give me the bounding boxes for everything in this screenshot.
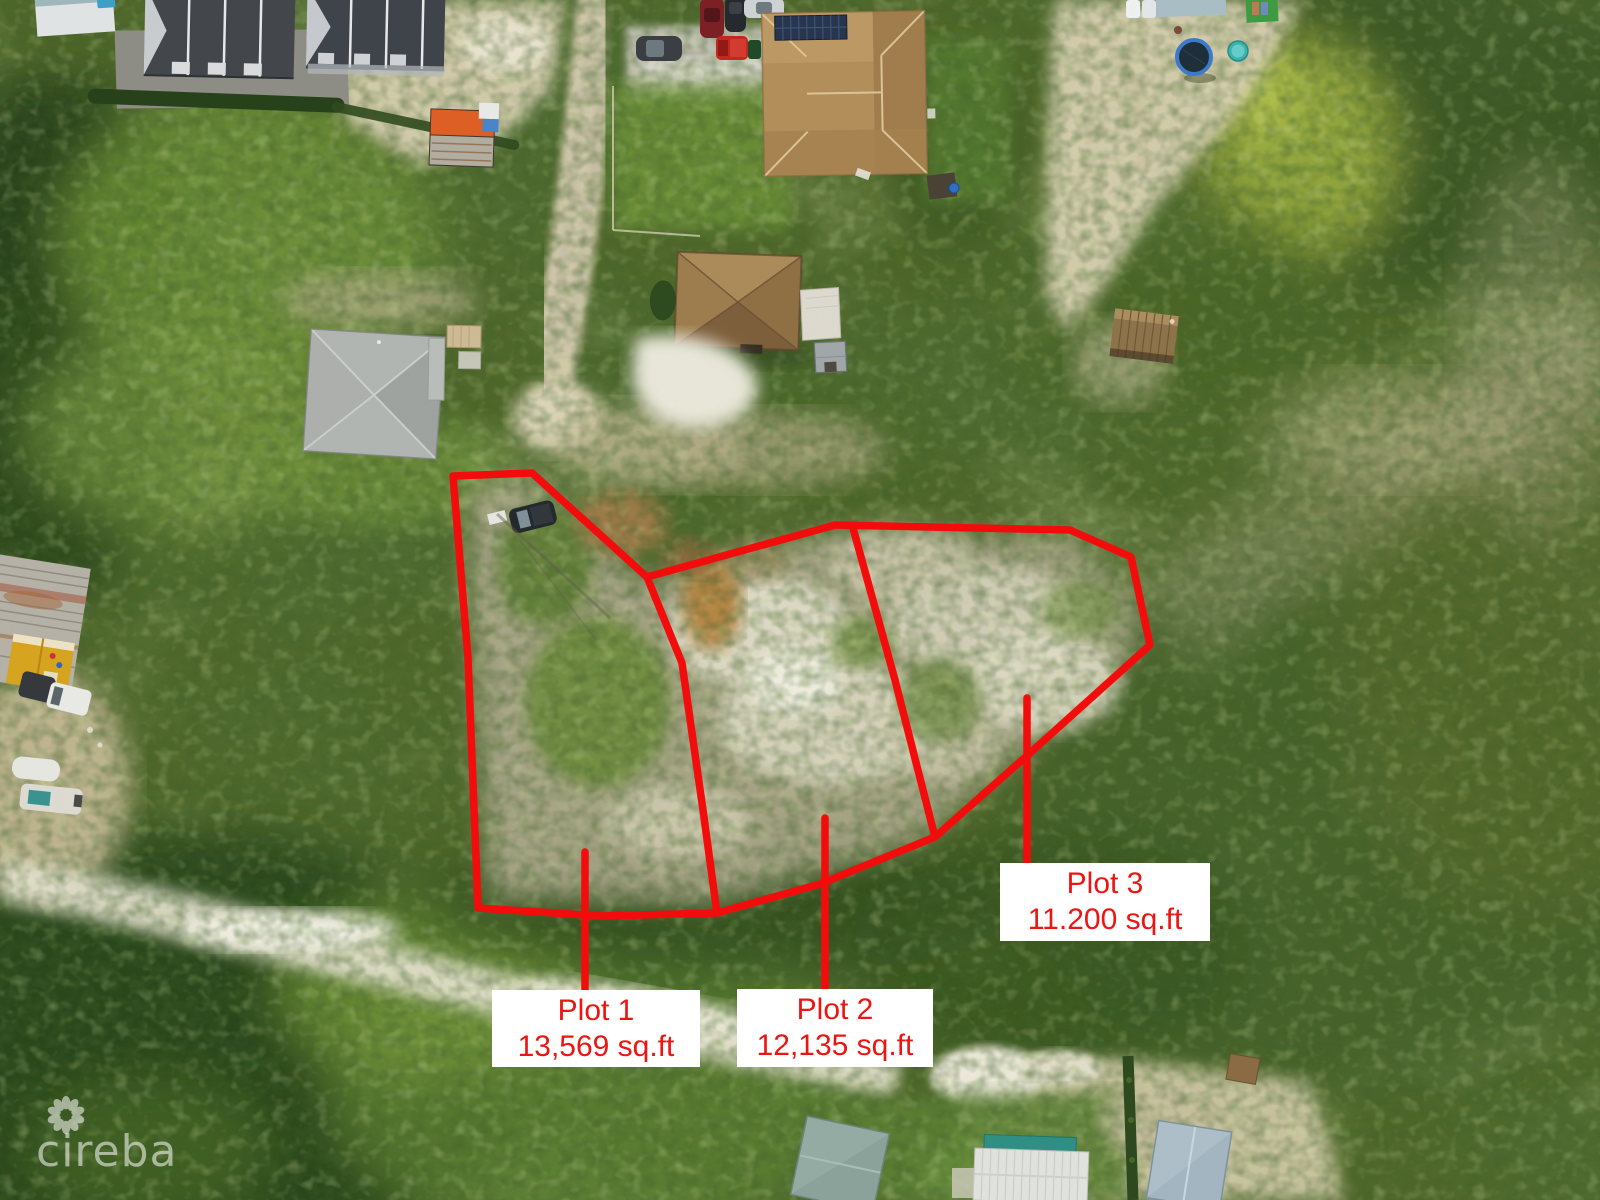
plot-3-label: Plot 3 11.200 sq.ft (1000, 863, 1210, 941)
plot-1-label: Plot 1 13,569 sq.ft (492, 990, 700, 1067)
plot-2-name: Plot 2 (797, 992, 874, 1028)
plot2-plot3-divider (853, 528, 935, 837)
aerial-photo: Plot 1 13,569 sq.ft Plot 2 12,135 sq.ft … (0, 0, 1600, 1200)
plot1-plot2-divider (647, 577, 717, 913)
plot-1-area: 13,569 sq.ft (518, 1029, 675, 1065)
plot-2-label: Plot 2 12,135 sq.ft (737, 989, 933, 1067)
plot-3-area: 11.200 sq.ft (1028, 902, 1183, 938)
plot-1-name: Plot 1 (558, 993, 635, 1029)
plot-2-area: 12,135 sq.ft (757, 1028, 914, 1064)
plot-3-name: Plot 3 (1067, 866, 1144, 902)
parcel-outer-boundary (453, 473, 1150, 916)
